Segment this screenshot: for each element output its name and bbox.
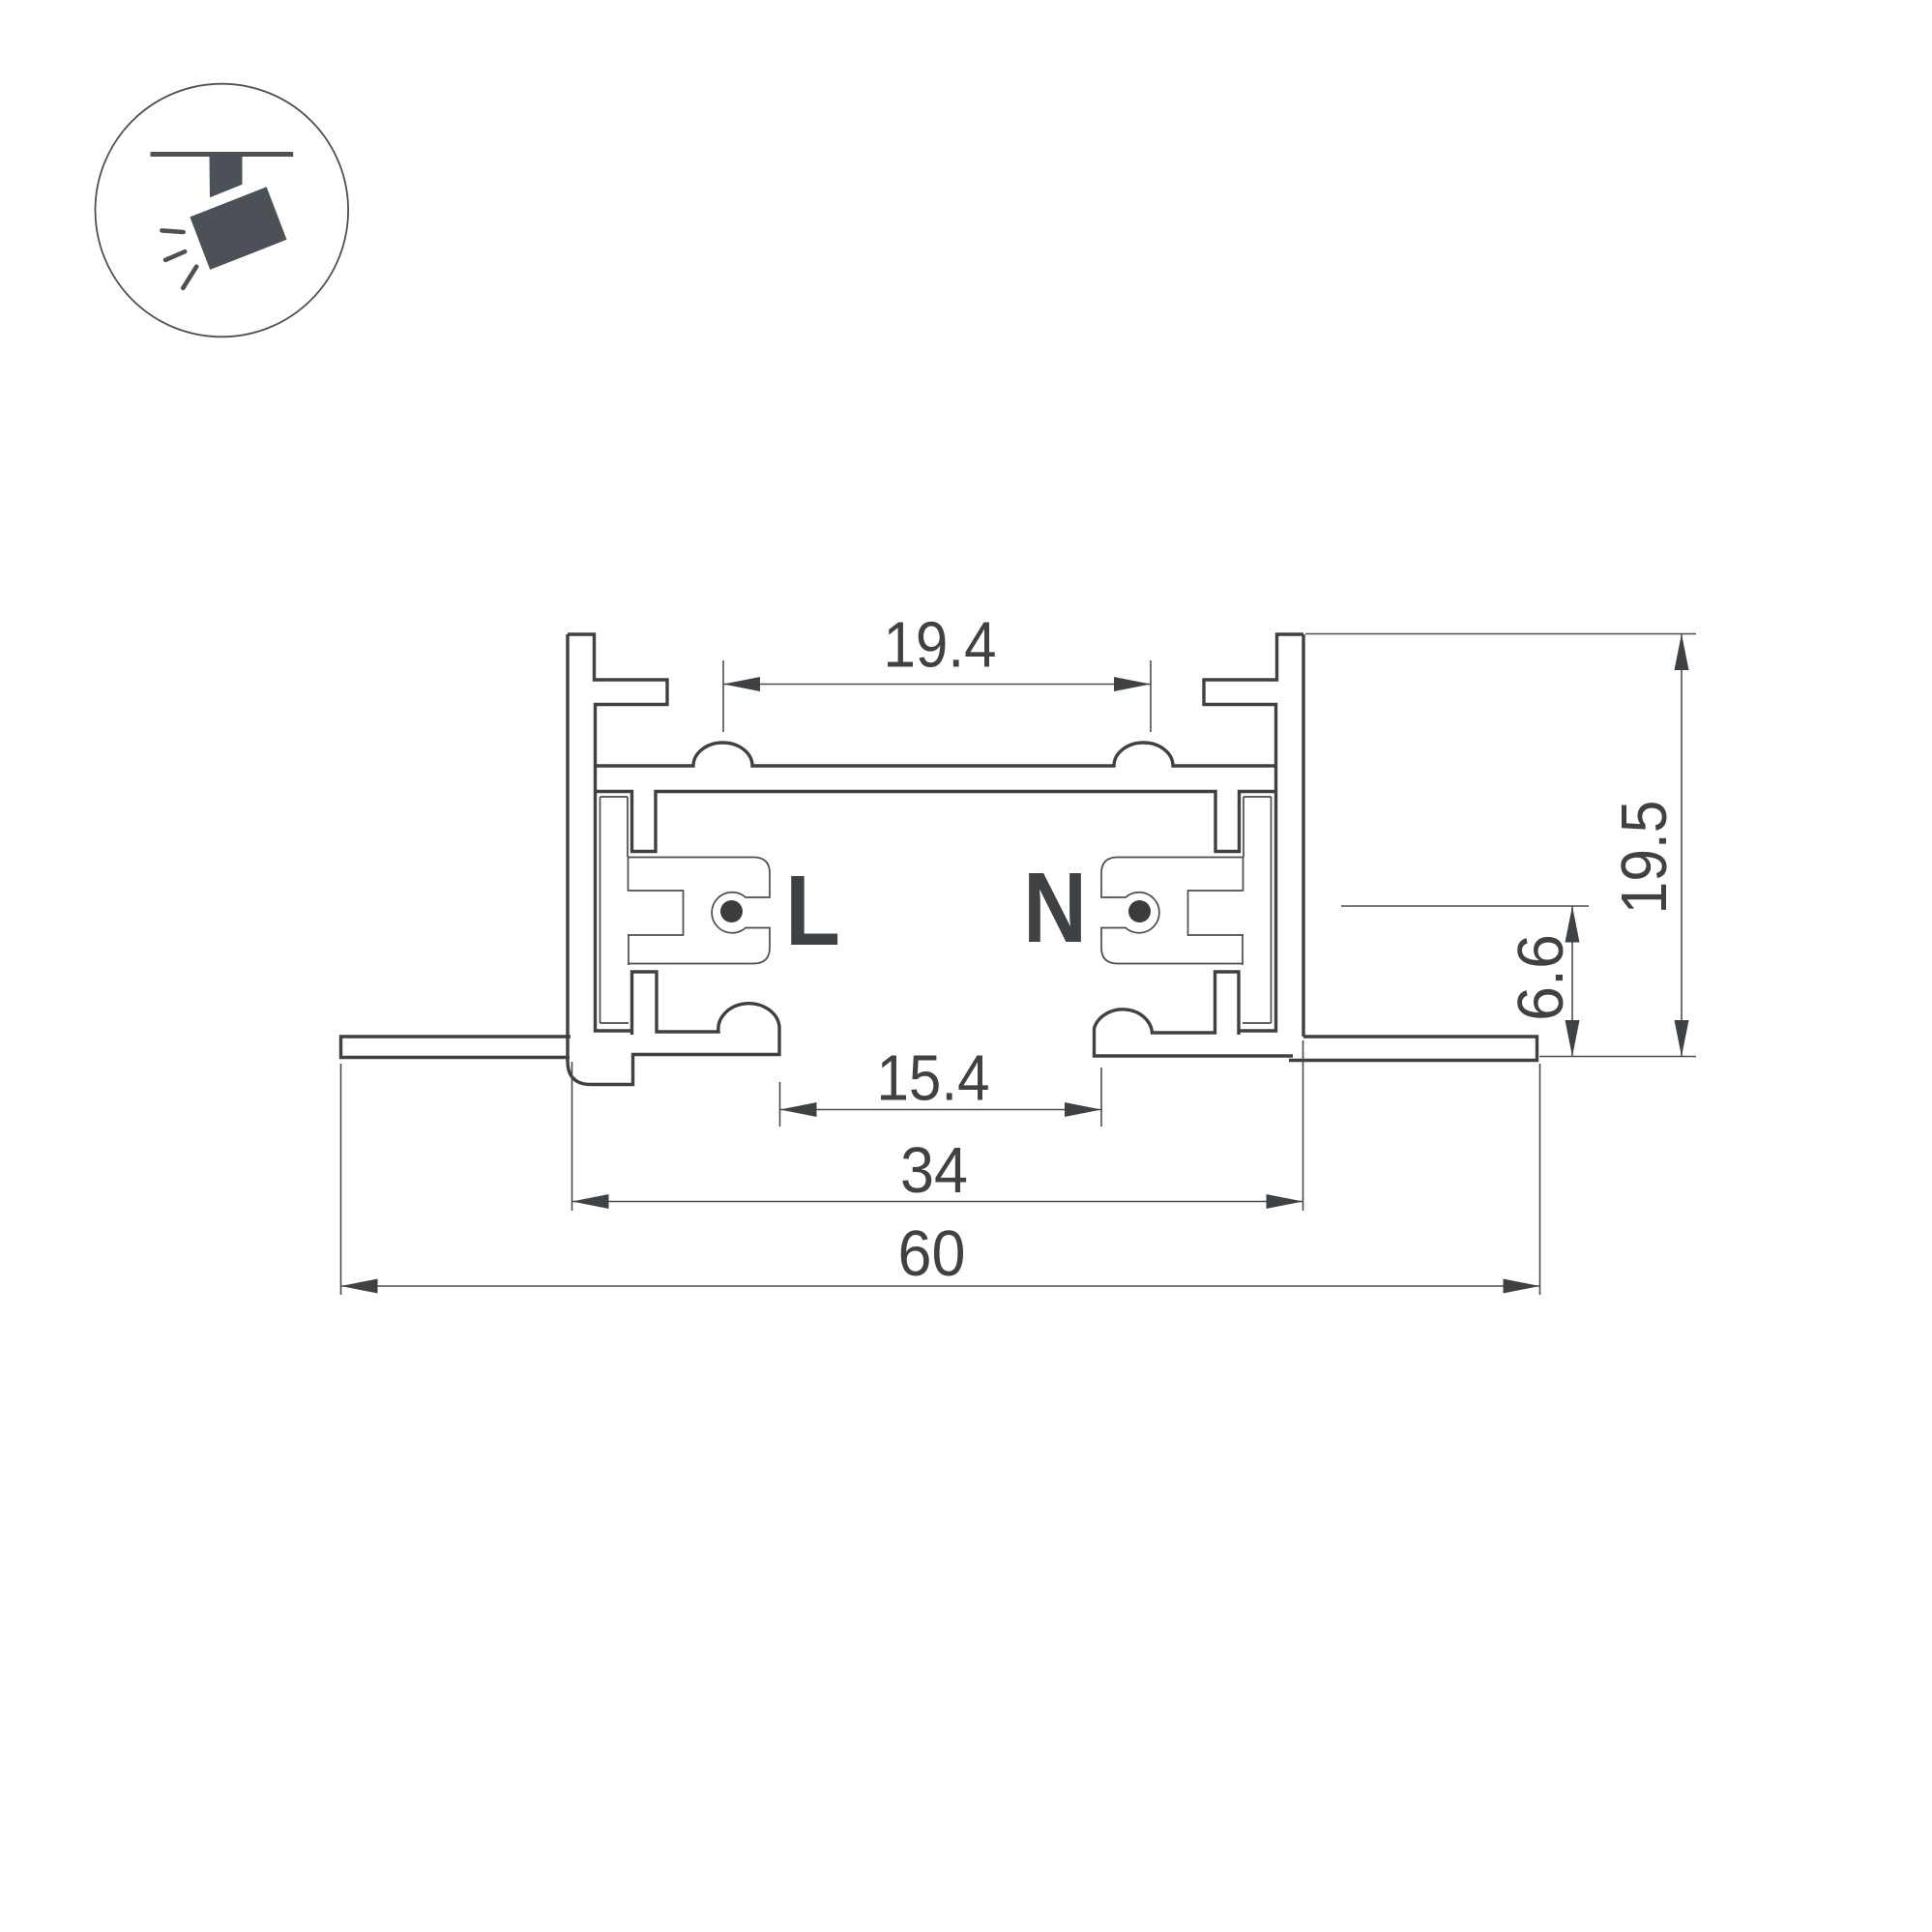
svg-text:6.6: 6.6 (1505, 934, 1577, 1021)
svg-text:N: N (1023, 852, 1087, 963)
svg-text:15.4: 15.4 (877, 1042, 990, 1115)
svg-text:60: 60 (898, 1217, 966, 1290)
svg-text:19.4: 19.4 (884, 609, 997, 682)
svg-text:19.5: 19.5 (1608, 801, 1681, 915)
svg-text:34: 34 (900, 1134, 968, 1207)
svg-text:L: L (785, 855, 840, 966)
